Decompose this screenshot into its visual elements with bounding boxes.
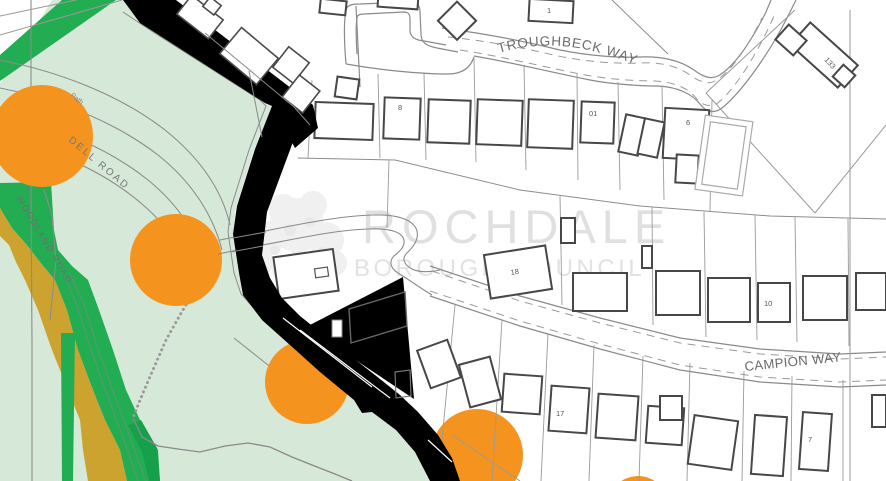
svg-text:6: 6 [686, 118, 690, 127]
svg-text:17: 17 [556, 409, 564, 418]
svg-text:8: 8 [398, 103, 402, 112]
svg-text:7: 7 [808, 435, 812, 444]
svg-text:1: 1 [547, 6, 551, 15]
svg-text:01: 01 [589, 109, 597, 118]
svg-text:10: 10 [764, 299, 772, 308]
svg-text:18: 18 [510, 267, 520, 277]
svg-text:ROCHDALE: ROCHDALE [362, 200, 671, 253]
